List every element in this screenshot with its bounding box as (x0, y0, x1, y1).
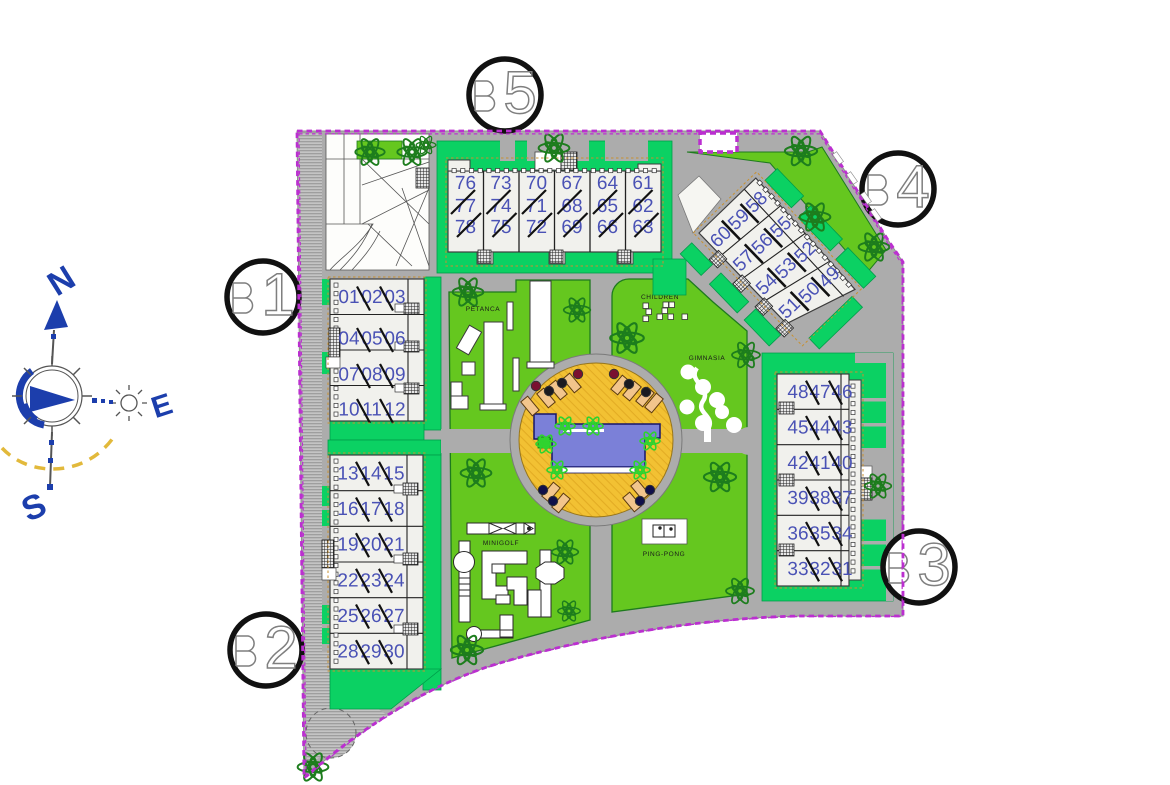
svg-text:08: 08 (361, 365, 382, 386)
svg-text:36: 36 (787, 524, 808, 545)
svg-text:S: S (16, 485, 52, 529)
svg-text:1: 1 (261, 261, 294, 328)
svg-text:05: 05 (361, 329, 382, 350)
svg-text:12: 12 (384, 400, 405, 421)
svg-text:GIMNASIA: GIMNASIA (689, 355, 726, 362)
svg-text:07: 07 (338, 365, 359, 386)
svg-text:PETANCA: PETANCA (466, 306, 500, 313)
svg-text:4: 4 (896, 153, 929, 220)
svg-text:19: 19 (337, 535, 358, 556)
svg-text:16: 16 (337, 499, 358, 520)
svg-text:N: N (41, 259, 82, 304)
svg-text:MINIGOLF: MINIGOLF (483, 540, 519, 547)
svg-text:42: 42 (787, 453, 808, 474)
svg-text:03: 03 (384, 287, 405, 308)
svg-text:45: 45 (787, 418, 808, 439)
svg-text:10: 10 (338, 400, 359, 421)
svg-text:02: 02 (361, 287, 382, 308)
svg-text:39: 39 (787, 488, 808, 509)
svg-text:04: 04 (338, 329, 360, 350)
svg-text:2: 2 (264, 614, 297, 681)
svg-text:25: 25 (337, 606, 358, 627)
svg-text:06: 06 (384, 329, 405, 350)
svg-text:22: 22 (337, 570, 358, 591)
svg-text:48: 48 (787, 382, 808, 403)
svg-text:28: 28 (337, 642, 358, 663)
svg-text:3: 3 (917, 531, 950, 598)
svg-text:01: 01 (338, 287, 359, 308)
svg-text:E: E (147, 387, 176, 425)
svg-text:09: 09 (384, 365, 405, 386)
svg-text:5: 5 (503, 59, 536, 126)
svg-text:11: 11 (362, 400, 382, 421)
svg-text:33: 33 (787, 559, 808, 580)
svg-text:13: 13 (337, 463, 358, 484)
svg-text:PING-PONG: PING-PONG (643, 551, 686, 558)
